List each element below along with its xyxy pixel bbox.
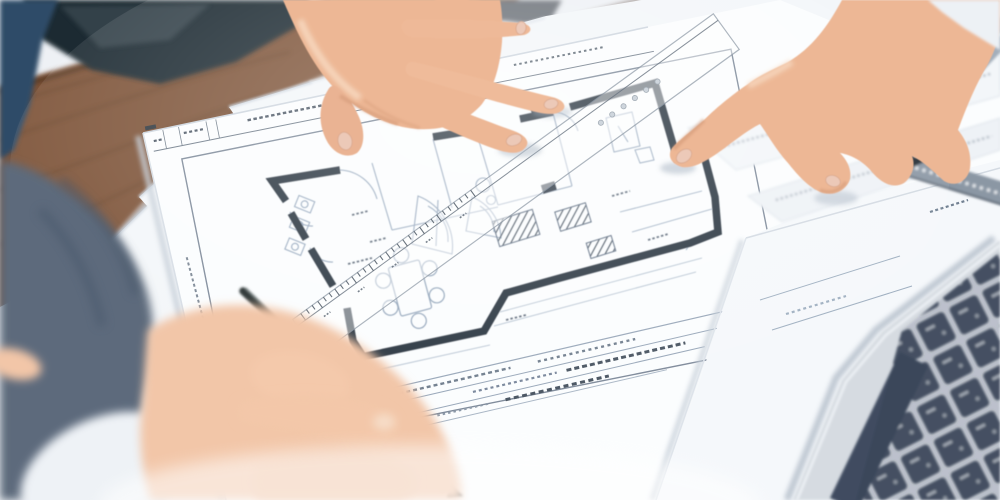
- writing-nail-hint: [373, 414, 395, 430]
- photo-blueprint-meeting: [0, 0, 1000, 500]
